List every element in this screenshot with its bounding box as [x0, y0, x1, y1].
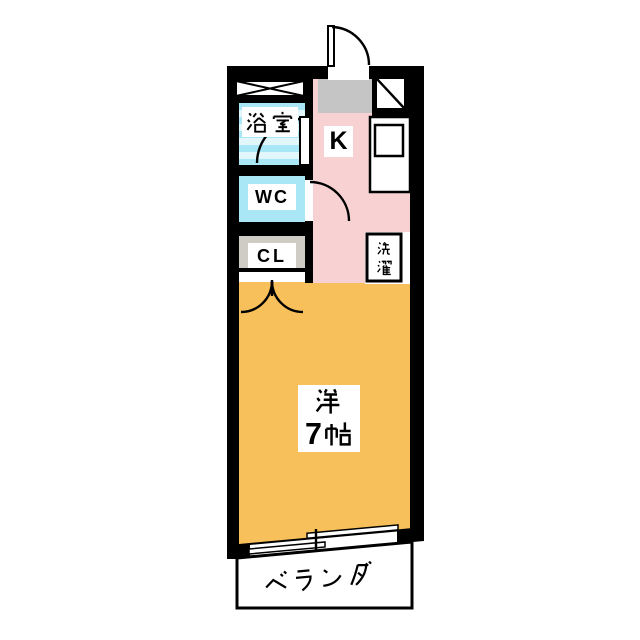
cjk-glyph [315, 387, 344, 416]
toilet-label: WC [248, 184, 296, 210]
kitchen-label: K [324, 126, 353, 157]
cjk-glyph [377, 241, 393, 257]
cjk-glyph [262, 569, 290, 597]
main-room-label-line1 [315, 387, 344, 416]
laundry-label [369, 237, 400, 279]
main-room-label-line2: 7 [305, 419, 353, 449]
entry-cabinet [372, 79, 410, 117]
kitchen-sink [375, 125, 403, 156]
bathroom-label [242, 107, 298, 137]
floorplan: WC CL K 7 [0, 0, 640, 640]
entrance-door [328, 26, 369, 80]
main-room-label: 7 [298, 385, 360, 452]
cjk-glyph [271, 111, 294, 134]
entry-area [318, 79, 372, 113]
cjk-glyph [346, 561, 374, 589]
kitchen-counter [370, 117, 410, 192]
cjk-glyph [318, 564, 346, 592]
vent-window [236, 81, 304, 96]
floorplan-drawing [0, 0, 640, 640]
closet-label: CL [248, 243, 296, 268]
cjk-glyph [290, 566, 318, 594]
cjk-glyph [377, 260, 393, 276]
cjk-glyph [324, 420, 353, 449]
cjk-glyph [246, 111, 269, 134]
